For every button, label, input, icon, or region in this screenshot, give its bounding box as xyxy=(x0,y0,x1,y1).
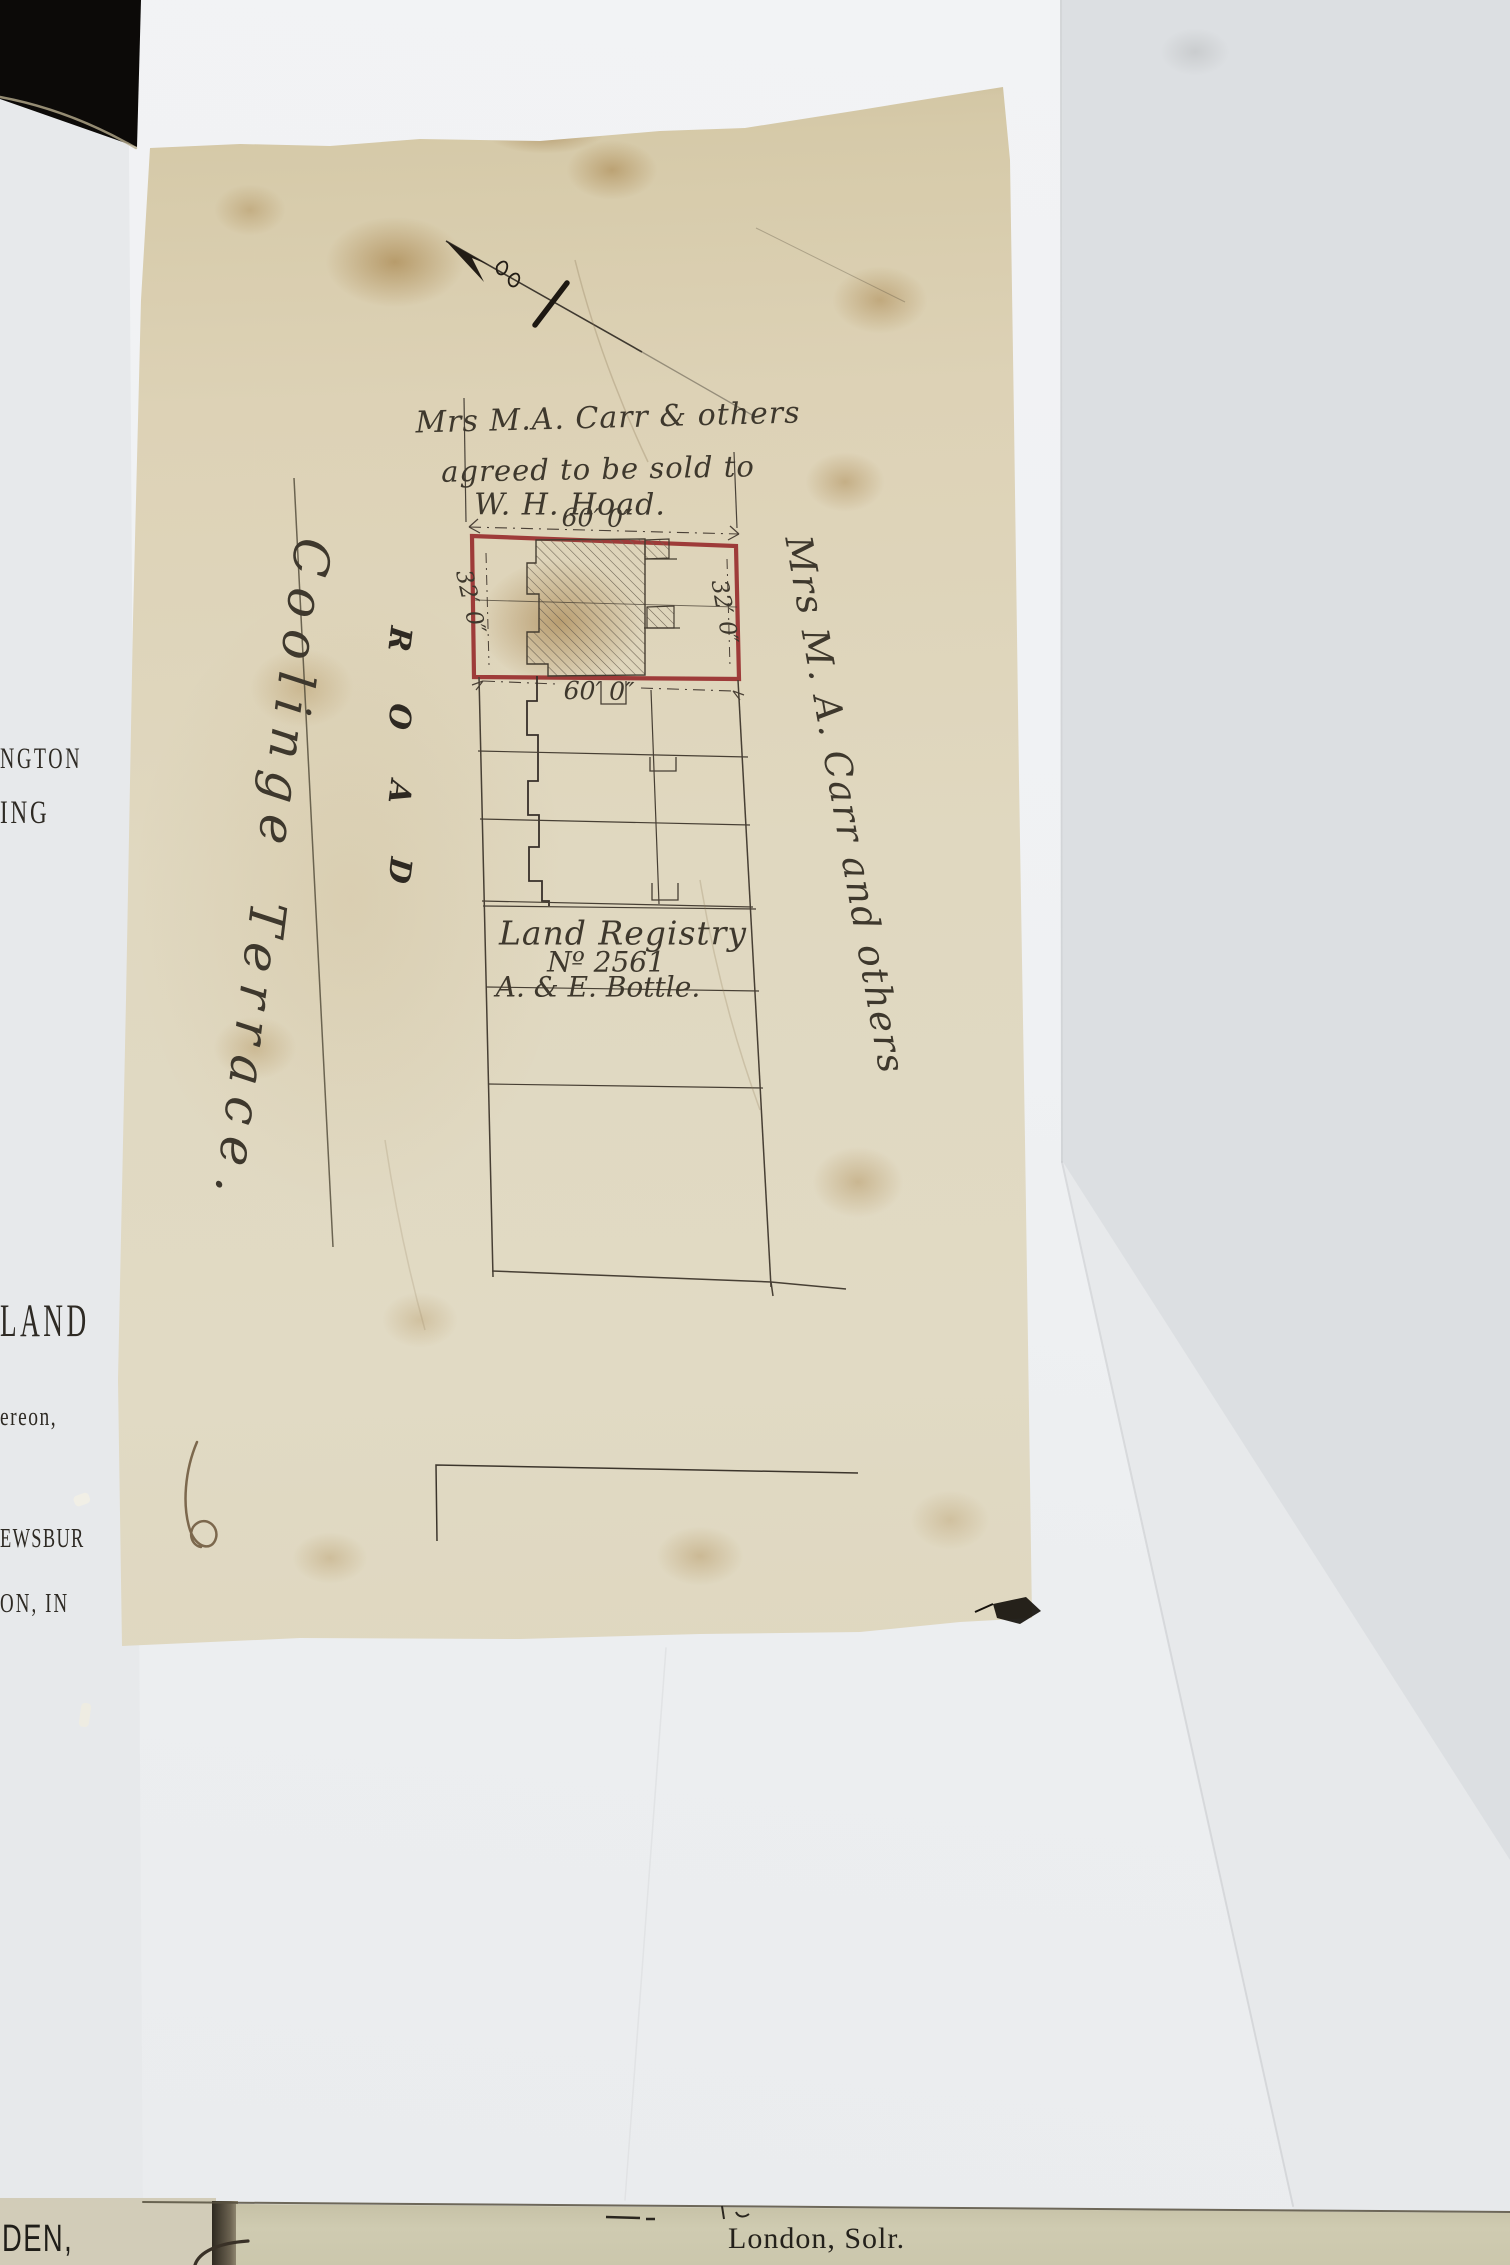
book-edge-fragment: EWSBUR xyxy=(0,1523,85,1554)
book-edge-fragment: LAND xyxy=(0,1294,90,1348)
road-letter: D xyxy=(380,855,418,885)
book-edge-fragment: DEN, xyxy=(2,2218,73,2261)
ink-blot xyxy=(975,1597,1041,1624)
scanned-archive-page: Mrs M.A. Carr & others agreed to be sold… xyxy=(0,0,1510,2265)
road-letter: O xyxy=(380,701,418,731)
slip-label: London, Solr. xyxy=(728,2222,905,2256)
pen-flourish xyxy=(195,2241,248,2265)
dimension-top: 60′ 0″ xyxy=(561,503,632,533)
building-footprint xyxy=(475,539,737,676)
road-label: R O A D xyxy=(386,622,412,888)
book-edge-fragment: ereon, xyxy=(0,1402,57,1432)
road-letter: A xyxy=(380,778,418,808)
book-edge-fragment: ING xyxy=(0,795,49,832)
book-edge-fragment: NGTON xyxy=(0,742,82,776)
book-edge-fragment: ON, IN xyxy=(0,1588,69,1619)
north-arrow-icon xyxy=(446,228,905,415)
ink-squiggle-mark xyxy=(186,1442,217,1547)
slip-print-fragments xyxy=(606,2206,749,2219)
road-letter: R xyxy=(380,624,418,654)
land-registry-line3: A. & E. Bottle. xyxy=(496,971,700,1004)
plan-title-line2: agreed to be sold to xyxy=(441,449,755,488)
dimension-bottom: 60′ 0″ xyxy=(563,676,634,706)
terrace-plot-lines xyxy=(436,676,858,1541)
